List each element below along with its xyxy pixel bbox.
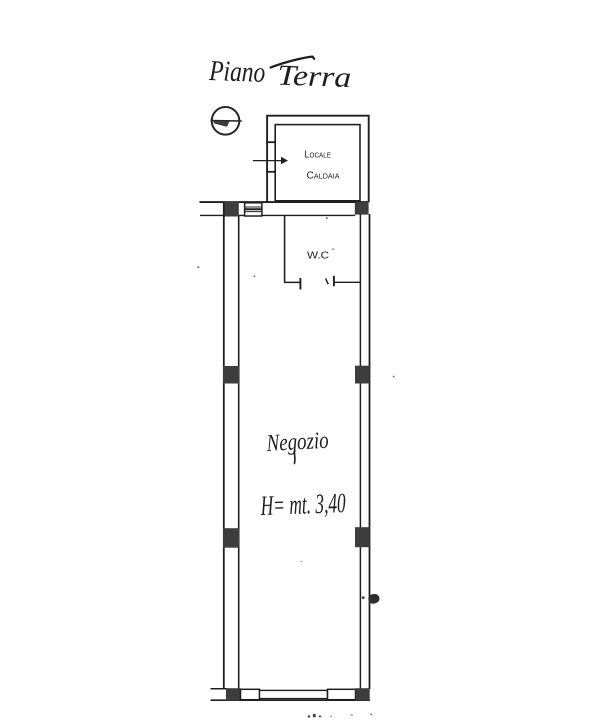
svg-text:W.C: W.C bbox=[307, 251, 329, 262]
svg-text:H= mt. 3,40: H= mt. 3,40 bbox=[260, 488, 347, 522]
svg-text:Locale: Locale bbox=[305, 150, 332, 161]
svg-text:Caldaia: Caldaia bbox=[307, 171, 340, 182]
svg-text:Terra: Terra bbox=[277, 60, 352, 95]
svg-text:Piano: Piano bbox=[208, 55, 266, 89]
svg-text:Negozio: Negozio bbox=[265, 428, 329, 457]
